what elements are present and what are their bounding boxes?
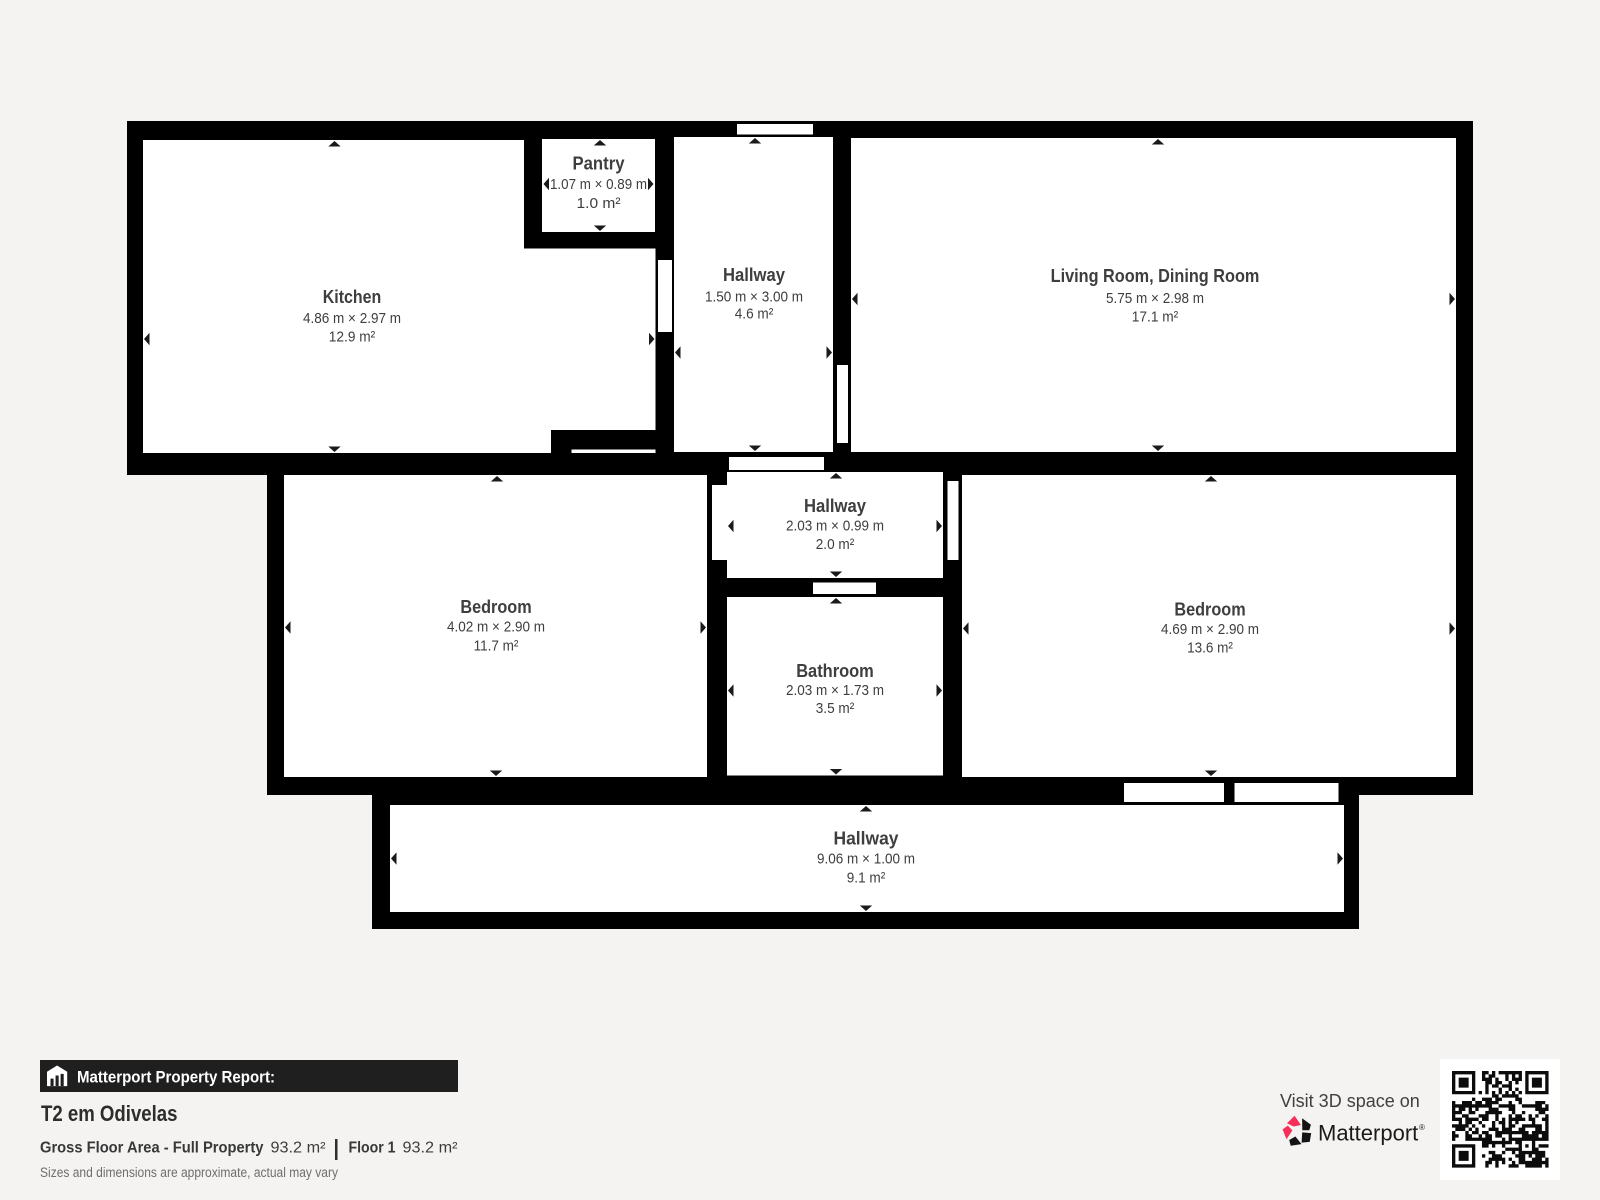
svg-text:Hallway: Hallway <box>804 496 866 516</box>
svg-text:12.9 m²: 12.9 m² <box>329 329 376 346</box>
svg-text:Sizes and dimensions are appro: Sizes and dimensions are approximate, ac… <box>40 1165 338 1180</box>
svg-text:Living Room, Dining Room: Living Room, Dining Room <box>1051 266 1260 286</box>
svg-text:9.1 m²: 9.1 m² <box>847 870 886 887</box>
svg-text:2.0 m²: 2.0 m² <box>816 536 855 553</box>
svg-text:Hallway: Hallway <box>723 265 785 285</box>
svg-text:4.86 m × 2.97 m: 4.86 m × 2.97 m <box>303 310 401 327</box>
svg-text:Kitchen: Kitchen <box>323 287 382 307</box>
svg-text:Gross Floor Area - Full Proper: Gross Floor Area - Full Property <box>40 1140 264 1157</box>
svg-text:3.5 m²: 3.5 m² <box>816 700 855 717</box>
svg-text:1.07 m × 0.89 m: 1.07 m × 0.89 m <box>550 176 647 193</box>
svg-text:Bedroom: Bedroom <box>1174 600 1245 620</box>
svg-text:Floor 1: Floor 1 <box>349 1140 396 1157</box>
svg-text:17.1 m²: 17.1 m² <box>1132 309 1179 326</box>
svg-text:Pantry: Pantry <box>573 154 625 174</box>
svg-text:Bathroom: Bathroom <box>796 661 874 681</box>
svg-text:T2 em Odivelas: T2 em Odivelas <box>41 1101 178 1126</box>
svg-text:13.6 m²: 13.6 m² <box>1187 640 1233 657</box>
svg-text:Matterport Property Report:: Matterport Property Report: <box>77 1067 275 1086</box>
svg-text:2.03 m × 0.99 m: 2.03 m × 0.99 m <box>786 518 884 535</box>
svg-text:2.03 m × 1.73 m: 2.03 m × 1.73 m <box>786 682 884 699</box>
svg-text:1.0 m²: 1.0 m² <box>577 195 621 212</box>
svg-text:93.2 m²: 93.2 m² <box>271 1140 326 1157</box>
svg-text:93.2 m²: 93.2 m² <box>403 1140 458 1157</box>
svg-text:4.69 m × 2.90 m: 4.69 m × 2.90 m <box>1161 621 1259 638</box>
svg-text:®: ® <box>1419 1123 1425 1132</box>
svg-text:4.6 m²: 4.6 m² <box>735 306 774 323</box>
svg-text:5.75 m × 2.98 m: 5.75 m × 2.98 m <box>1106 290 1204 307</box>
svg-text:Matterport: Matterport <box>1318 1121 1418 1146</box>
svg-text:Visit 3D space on: Visit 3D space on <box>1280 1091 1420 1111</box>
svg-text:9.06 m × 1.00 m: 9.06 m × 1.00 m <box>817 851 915 868</box>
svg-text:1.50 m × 3.00 m: 1.50 m × 3.00 m <box>705 289 803 306</box>
svg-text:Hallway: Hallway <box>834 829 899 849</box>
svg-text:11.7 m²: 11.7 m² <box>474 638 519 655</box>
svg-text:Bedroom: Bedroom <box>460 597 531 617</box>
svg-text:4.02 m × 2.90 m: 4.02 m × 2.90 m <box>447 619 545 636</box>
